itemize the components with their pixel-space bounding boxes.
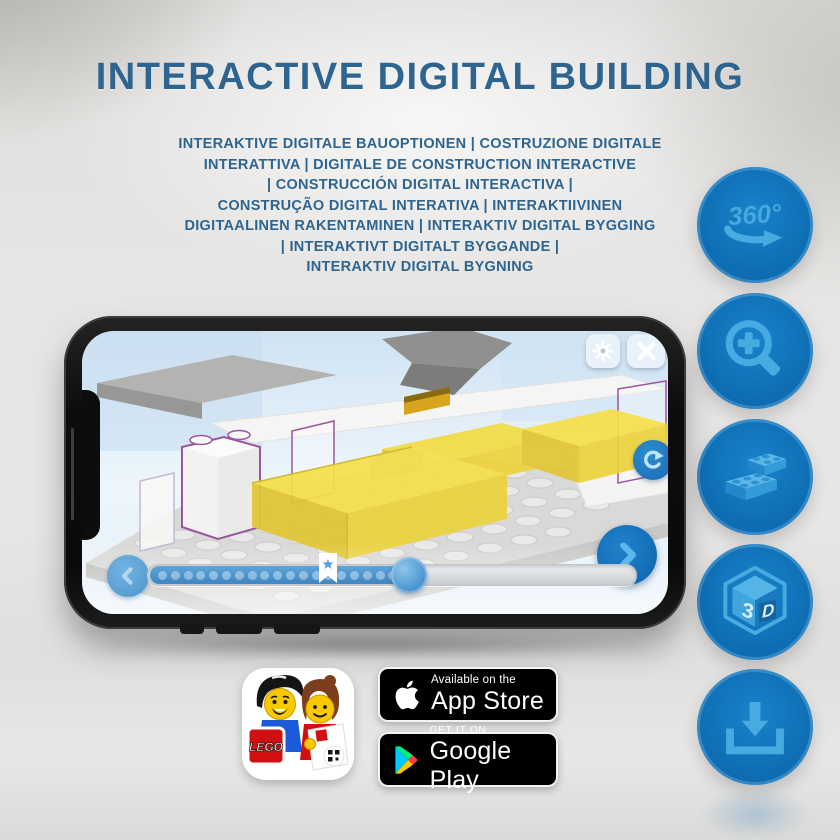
progress-dot (184, 571, 193, 580)
apple-icon (393, 679, 420, 711)
progress-dot (286, 571, 295, 580)
progress-dot (273, 571, 282, 580)
feature-download-button[interactable] (697, 669, 813, 785)
google-play-badge[interactable]: GET IT ON Google Play (378, 732, 558, 787)
svg-text:360°: 360° (727, 200, 783, 232)
app-store-name: App Store (431, 687, 544, 716)
page-title: INTERACTIVE DIGITAL BUILDING (0, 56, 840, 99)
volume-button (274, 624, 320, 634)
progress-dot (350, 571, 359, 580)
feature-bricks-button[interactable] (697, 419, 813, 535)
google-play-tagline: GET IT ON (430, 725, 556, 736)
svg-text:D: D (762, 599, 775, 622)
progress-dot (171, 571, 180, 580)
cube-3d-icon: 3 D (716, 563, 794, 641)
feature-360-button[interactable]: 360° (697, 167, 813, 283)
magnifier-plus-icon (716, 312, 794, 390)
close-icon (635, 340, 657, 362)
google-play-name: Google Play (430, 737, 556, 795)
progress-dot (376, 571, 385, 580)
rotate-reset-button[interactable] (633, 440, 668, 480)
download-icon (716, 688, 794, 766)
star-icon (322, 558, 334, 570)
circle-reflection (700, 788, 810, 840)
svg-text:LEGO: LEGO (249, 740, 284, 754)
app-store-badge[interactable]: Available on the App Store (378, 667, 558, 722)
previous-step-button[interactable] (107, 555, 149, 597)
progress-dot (222, 571, 231, 580)
close-button[interactable] (627, 334, 665, 368)
progress-slider[interactable] (147, 564, 637, 586)
slider-thumb[interactable] (391, 557, 427, 593)
subtitle-line: | INTERAKTIVT DIGITALT BYGGANDE | (110, 237, 730, 258)
volume-button (216, 624, 262, 634)
svg-text:3: 3 (742, 598, 754, 625)
subtitle-line: INTERAKTIVE DIGITALE BAUOPTIONEN | COSTR… (110, 134, 730, 155)
lego-bricks-icon (716, 438, 794, 516)
phone-mockup (64, 316, 686, 629)
gear-icon (591, 339, 615, 363)
chevron-left-icon (118, 566, 138, 586)
phone-notch (82, 390, 100, 540)
feature-3d-button[interactable]: 3 D (697, 544, 813, 660)
promo-poster: INTERACTIVE DIGITAL BUILDING INTERAKTIVE… (0, 0, 840, 840)
feature-zoom-button[interactable] (697, 293, 813, 409)
rotate-icon (641, 448, 665, 472)
multilingual-subtitle: INTERAKTIVE DIGITALE BAUOPTIONEN | COSTR… (110, 134, 730, 278)
progress-dot (248, 571, 257, 580)
settings-button[interactable] (586, 334, 620, 368)
rotate-360-icon: 360° (716, 186, 794, 264)
progress-dot (158, 571, 167, 580)
progress-dot (196, 571, 205, 580)
google-play-icon (393, 744, 419, 776)
subtitle-line: CONSTRUÇÃO DIGITAL INTERATIVA | INTERAKT… (110, 196, 730, 217)
lego-app-icon[interactable]: LEGO (242, 668, 354, 780)
phone-shadow (86, 632, 652, 658)
phone-screen (82, 331, 668, 614)
speaker-slit (71, 428, 74, 520)
progress-dot (235, 571, 244, 580)
progress-dot (337, 571, 346, 580)
progress-dot (299, 571, 308, 580)
progress-dot (363, 571, 372, 580)
progress-fill (150, 566, 427, 584)
subtitle-line: INTERATTIVA | DIGITALE DE CONSTRUCTION I… (110, 155, 730, 176)
subtitle-line: INTERAKTIV DIGITAL BYGNING (110, 257, 730, 278)
minifigures-illustration: LEGO (242, 668, 348, 774)
subtitle-line: DIGITAALINEN RAKENTAMINEN | INTERAKTIV D… (110, 216, 730, 237)
progress-dot (209, 571, 218, 580)
app-store-tagline: Available on the (431, 674, 544, 686)
subtitle-line: | CONSTRUCCIÓN DIGITAL INTERACTIVA | (110, 175, 730, 196)
progress-dot (260, 571, 269, 580)
power-button (180, 624, 204, 634)
